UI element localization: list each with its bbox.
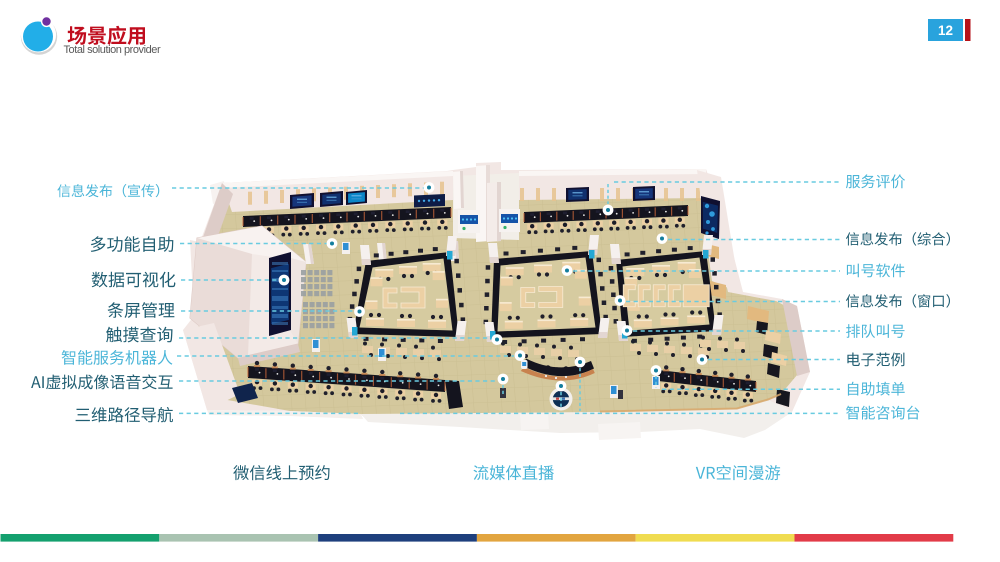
svg-text:12: 12 [938, 23, 953, 38]
svg-text:Total solution provider: Total solution provider [64, 44, 161, 56]
